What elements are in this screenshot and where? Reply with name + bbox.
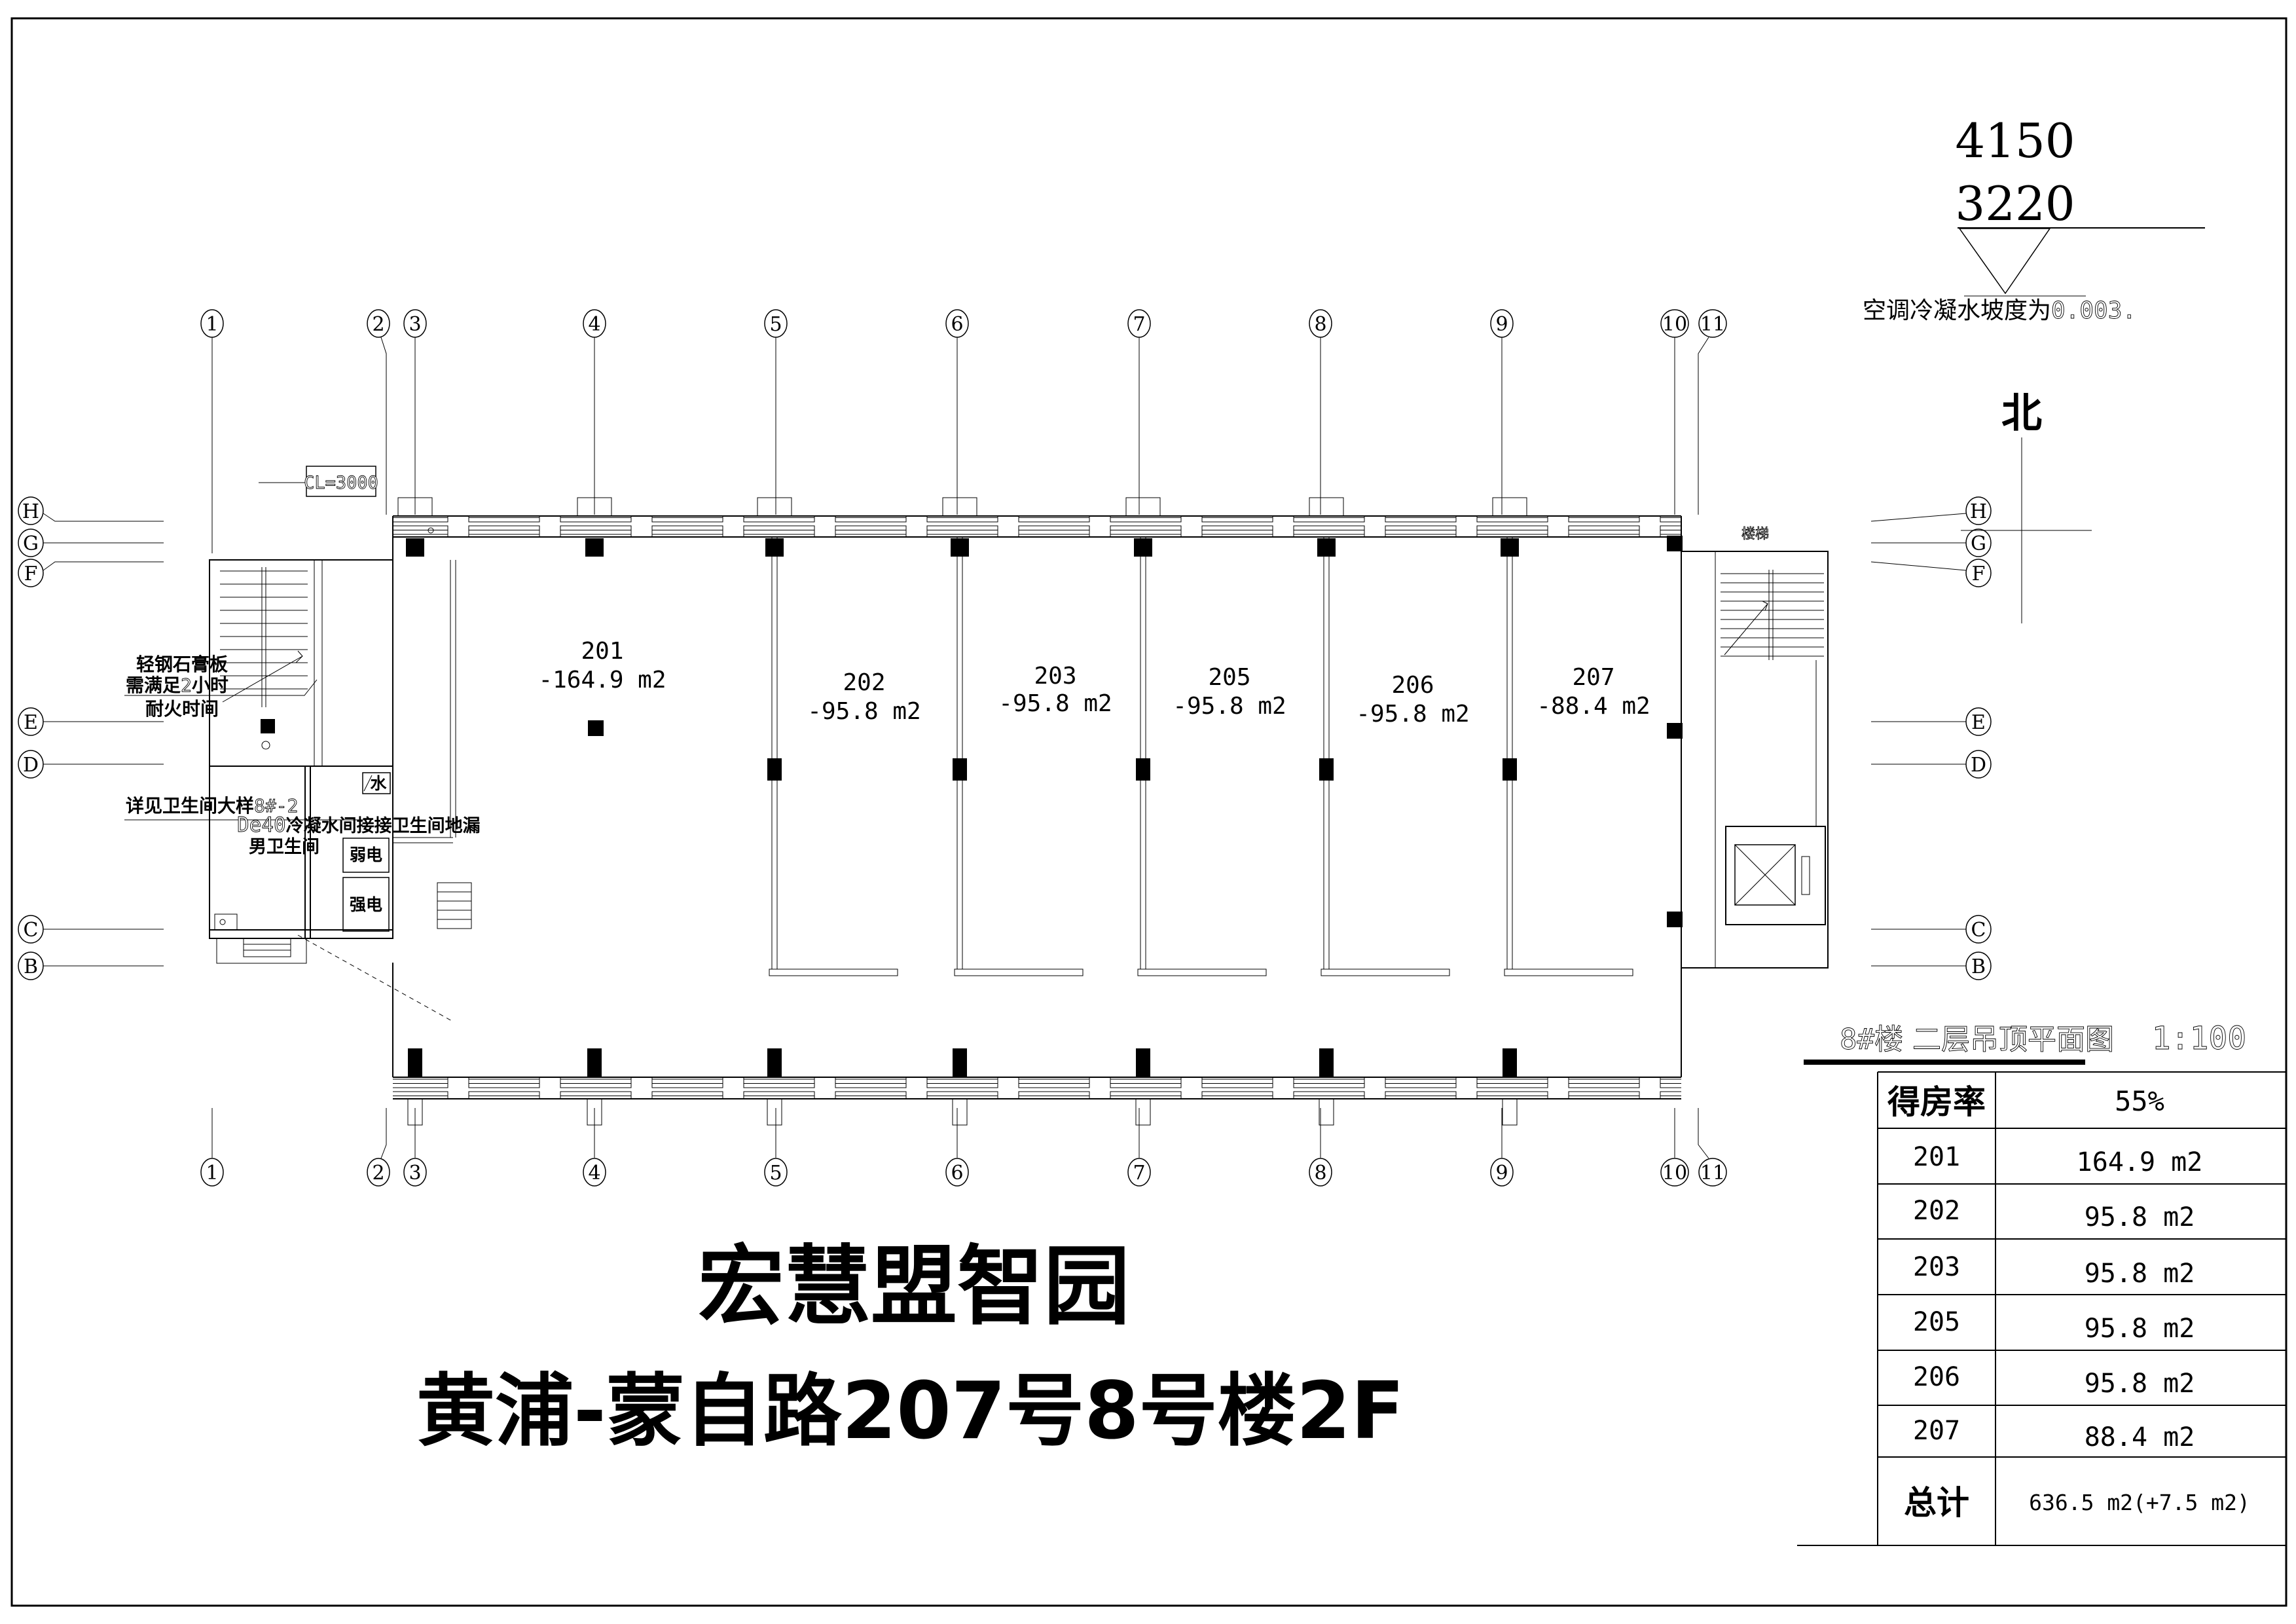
drain-note-text: De40冷凝水间接接卫生间地漏	[237, 813, 481, 837]
svg-text:201: 201	[1913, 1142, 1960, 1172]
svg-text:7: 7	[1133, 313, 1145, 336]
toilet-fixture-icon	[215, 914, 237, 930]
svg-text:D: D	[23, 754, 39, 777]
svg-text:H: H	[1970, 500, 1987, 523]
svg-text:E: E	[1971, 711, 1986, 734]
svg-text:206: 206	[1913, 1362, 1960, 1392]
grid-letter-left-D: D	[18, 750, 164, 778]
dimension-bottom: 3220	[1955, 176, 2075, 231]
grid-bubble-top-8: 8	[1309, 310, 1332, 515]
grid-letter-right-H: H	[1871, 497, 1991, 525]
svg-text:10: 10	[1662, 1162, 1687, 1185]
grid-letter-right-B: B	[1871, 952, 1991, 980]
svg-text:11: 11	[1700, 313, 1725, 336]
svg-text:6: 6	[951, 313, 963, 336]
partition-202-203	[953, 537, 1083, 976]
grid-letter-left-F: F	[18, 559, 164, 587]
svg-text:3: 3	[409, 1162, 421, 1185]
water-riser-tag: 水	[363, 773, 390, 794]
svg-text:-88.4 m2: -88.4 m2	[1537, 693, 1650, 720]
svg-text:4: 4	[588, 1162, 600, 1185]
grid-bubble-top-9: 9	[1491, 310, 1513, 515]
drawing-title-block: 8#楼 二层吊顶平面图 1:100	[1804, 1020, 2246, 1065]
grid-bubble-bottom-5: 5	[765, 1108, 787, 1186]
grid-letter-right-E: E	[1871, 708, 1991, 735]
mens-bathroom-label: 男卫生间	[249, 837, 319, 857]
room-label-206: 206-95.8 m2	[1356, 672, 1469, 728]
svg-text:2: 2	[372, 313, 384, 336]
north-wall	[393, 498, 1681, 557]
grid-bubble-top-10: 10	[1661, 310, 1688, 515]
project-address: 黄浦-蒙自路207号8号楼2F	[416, 1366, 1404, 1457]
table-row-202: 20295.8 m2	[1913, 1196, 2195, 1232]
grid-bubble-bottom-6: 6	[946, 1108, 968, 1186]
grid-letter-right-G: G	[1871, 529, 1991, 557]
entry-steps	[244, 938, 291, 957]
weak-power-label: 弱电	[350, 845, 382, 864]
table-total-value: 636.5 m2(+7.5 m2)	[2029, 1490, 2250, 1515]
title-underline	[1804, 1060, 2085, 1065]
svg-text:4: 4	[588, 313, 600, 336]
room-label-207: 207-88.4 m2	[1537, 664, 1650, 720]
svg-text:8: 8	[1314, 313, 1326, 336]
floor-plan: 201-164.9 m2 202-95.8 m2 203-95.8 m2 205…	[124, 498, 1828, 1125]
fire-wall-hatch	[314, 560, 322, 766]
svg-text:8: 8	[1314, 1162, 1326, 1185]
table-total-row: 总计 636.5 m2(+7.5 m2)	[1904, 1484, 2250, 1522]
svg-text:-95.8 m2: -95.8 m2	[998, 690, 1112, 717]
left-staircase	[220, 567, 308, 707]
gypsum-note-line2: 需满足2小时	[126, 674, 228, 696]
table-row-206: 20695.8 m2	[1913, 1362, 2195, 1399]
drawing-sheet: 4150 3220 空调冷凝水坡度为0.003. 北 1 2 3 4 5 6 7…	[0, 0, 2296, 1624]
east-column-bottom	[1667, 912, 1683, 927]
entry-porch	[217, 938, 306, 963]
room-label-203: 203-95.8 m2	[998, 663, 1112, 717]
slope-triangle-icon	[1959, 229, 2050, 293]
stair-label: 楼梯	[1741, 526, 1769, 542]
svg-text:201: 201	[581, 638, 623, 665]
svg-text:-95.8 m2: -95.8 m2	[807, 698, 920, 725]
svg-text:207: 207	[1913, 1416, 1960, 1446]
grid-bubble-top-5: 5	[765, 310, 787, 515]
grid-letters-right: H G F E D C B	[1871, 497, 1991, 980]
table-row-201: 201164.9 m2	[1913, 1142, 2202, 1177]
south-wall	[393, 1048, 1681, 1125]
svg-text:203: 203	[1034, 663, 1076, 690]
room-label-201: 201-164.9 m2	[538, 638, 666, 693]
partition-206-207	[1503, 537, 1633, 976]
east-column-mid	[1667, 723, 1683, 739]
right-staircase	[1721, 570, 1824, 660]
svg-text:205: 205	[1208, 664, 1250, 691]
svg-text:203: 203	[1913, 1252, 1960, 1282]
svg-text:9: 9	[1495, 313, 1508, 336]
grid-letter-right-F: F	[1871, 559, 1991, 587]
svg-text:B: B	[1971, 955, 1986, 978]
ceiling-level-label: CL=3000	[304, 473, 378, 493]
bathroom-detail-note: 详见卫生间大样8#-2 De40冷凝水间接接卫生间地漏	[124, 795, 481, 837]
grid-bubble-top-3: 3	[404, 310, 426, 515]
svg-text:C: C	[1971, 919, 1986, 942]
svg-text:202: 202	[843, 669, 885, 696]
grid-bubble-bottom-2: 2	[367, 1108, 390, 1186]
grid-bubble-bottom-4: 4	[583, 1108, 606, 1186]
svg-text:D: D	[1971, 754, 1986, 777]
svg-text:1: 1	[206, 1162, 218, 1185]
grid-bubbles-bottom: 1 2 3 4 5 6 7 8 9 10 11	[201, 1108, 1726, 1186]
weak-power-closet: 弱电	[343, 838, 389, 872]
partition-201-202	[767, 537, 898, 976]
grid-bubble-bottom-10: 10	[1661, 1108, 1688, 1186]
grid-letter-right-D: D	[1871, 750, 1991, 778]
strong-power-label: 强电	[350, 895, 382, 914]
table-row-203: 20395.8 m2	[1913, 1252, 2195, 1289]
stair-direction-arrow	[223, 651, 302, 702]
svg-text:G: G	[23, 532, 39, 555]
svg-text:2: 2	[372, 1162, 384, 1185]
dimension-top: 4150	[1955, 113, 2075, 168]
table-row-207: 20788.4 m2	[1913, 1416, 2195, 1452]
room-label-202: 202-95.8 m2	[807, 669, 920, 725]
grid-letter-left-B: B	[18, 952, 164, 980]
ceiling-level-tag: CL=3000	[259, 466, 378, 496]
room201-step-wall	[393, 560, 604, 843]
svg-text:E: E	[24, 711, 38, 734]
svg-text:6: 6	[951, 1162, 963, 1185]
table-header-value: 55%	[2115, 1085, 2164, 1117]
grid-bubble-bottom-11: 11	[1698, 1108, 1726, 1186]
room201-column	[588, 720, 604, 736]
elevator-door	[1802, 857, 1810, 895]
dimension-block: 4150 3220 空调冷凝水坡度为0.003.	[1863, 113, 2205, 324]
floor-drain-icon	[262, 741, 270, 749]
svg-text:202: 202	[1913, 1196, 1960, 1226]
grid-bubble-bottom-8: 8	[1309, 1108, 1332, 1186]
grid-bubble-top-1: 1	[201, 310, 223, 553]
svg-text:207: 207	[1572, 664, 1614, 691]
entry-leader-line	[298, 935, 453, 1022]
svg-text:1: 1	[206, 313, 218, 336]
strong-power-closet: 强电	[343, 877, 389, 931]
svg-text:95.8 m2: 95.8 m2	[2085, 1369, 2195, 1399]
water-riser-label: 水	[370, 774, 387, 793]
grid-bubble-bottom-3: 3	[404, 1108, 426, 1186]
grid-bubble-top-4: 4	[583, 310, 606, 515]
room-label-205: 205-95.8 m2	[1173, 664, 1286, 720]
svg-text:H: H	[22, 500, 39, 523]
north-label: 北	[2001, 389, 2042, 437]
svg-text:-164.9 m2: -164.9 m2	[538, 667, 666, 693]
room-labels: 201-164.9 m2 202-95.8 m2 203-95.8 m2 205…	[538, 638, 1650, 728]
svg-text:B: B	[24, 955, 38, 978]
grid-bubble-bottom-1: 1	[201, 1108, 223, 1186]
grid-letter-left-H: H	[18, 497, 164, 525]
table-header-label: 得房率	[1887, 1083, 1986, 1121]
gypsum-note: 轻钢石膏板 需满足2小时 耐火时间	[124, 654, 317, 720]
svg-text:G: G	[1971, 532, 1986, 555]
svg-text:3: 3	[409, 313, 421, 336]
grid-letter-left-E: E	[18, 708, 164, 735]
annex-column	[261, 719, 275, 733]
svg-text:5: 5	[769, 313, 782, 336]
area-table: 得房率 55% 201164.9 m2 20295.8 m2 20395.8 m…	[1797, 1072, 2286, 1545]
grid-letters-left: H G F E D C B	[18, 497, 164, 980]
svg-text:205: 205	[1913, 1307, 1960, 1337]
svg-text:95.8 m2: 95.8 m2	[2085, 1202, 2195, 1232]
gypsum-note-line3: 耐火时间	[145, 698, 219, 720]
svg-text:-95.8 m2: -95.8 m2	[1356, 701, 1469, 728]
table-total-label: 总计	[1904, 1484, 1969, 1522]
svg-text:5: 5	[769, 1162, 782, 1185]
gypsum-note-line1: 轻钢石膏板	[136, 654, 228, 675]
svg-text:95.8 m2: 95.8 m2	[2085, 1259, 2195, 1289]
svg-text:-95.8 m2: -95.8 m2	[1173, 693, 1286, 720]
footer-titles: 宏慧盟智园 黄浦-蒙自路207号8号楼2F	[416, 1236, 1404, 1457]
svg-text:206: 206	[1391, 672, 1434, 699]
partition-203-205	[1136, 537, 1266, 976]
svg-text:F: F	[1972, 563, 1986, 585]
svg-text:C: C	[24, 919, 39, 942]
svg-text:10: 10	[1662, 313, 1687, 336]
left-annex: 水 弱电 强电 男卫生间	[210, 560, 471, 1022]
svg-text:95.8 m2: 95.8 m2	[2085, 1314, 2195, 1344]
right-annex: 楼梯	[1681, 526, 1828, 968]
svg-text:11: 11	[1700, 1162, 1725, 1185]
table-header-row: 得房率 55%	[1887, 1083, 2164, 1121]
table-row-205: 20595.8 m2	[1913, 1307, 2195, 1344]
drawing-title: 8#楼 二层吊顶平面图 1:100	[1840, 1020, 2246, 1057]
svg-text:F: F	[24, 563, 38, 585]
grid-bubble-top-6: 6	[946, 310, 968, 515]
svg-text:9: 9	[1495, 1162, 1508, 1185]
east-column-top	[1667, 536, 1683, 551]
grid-letter-left-G: G	[18, 529, 164, 557]
grid-bubble-bottom-9: 9	[1491, 1108, 1513, 1186]
grid-bubble-bottom-7: 7	[1128, 1108, 1150, 1186]
partition-walls	[767, 537, 1633, 976]
grid-bubble-top-11: 11	[1698, 310, 1726, 515]
grid-bubble-top-7: 7	[1128, 310, 1150, 515]
elevator	[1726, 826, 1825, 925]
service-stair	[437, 883, 471, 929]
condensate-slope-note: 空调冷凝水坡度为0.003.	[1863, 297, 2136, 324]
svg-text:7: 7	[1133, 1162, 1145, 1185]
project-name: 宏慧盟智园	[698, 1236, 1130, 1337]
grid-letter-left-C: C	[18, 915, 164, 943]
grid-letter-right-C: C	[1871, 915, 1991, 943]
partition-205-206	[1319, 537, 1449, 976]
svg-text:88.4 m2: 88.4 m2	[2085, 1422, 2195, 1452]
svg-text:164.9 m2: 164.9 m2	[2077, 1147, 2203, 1177]
